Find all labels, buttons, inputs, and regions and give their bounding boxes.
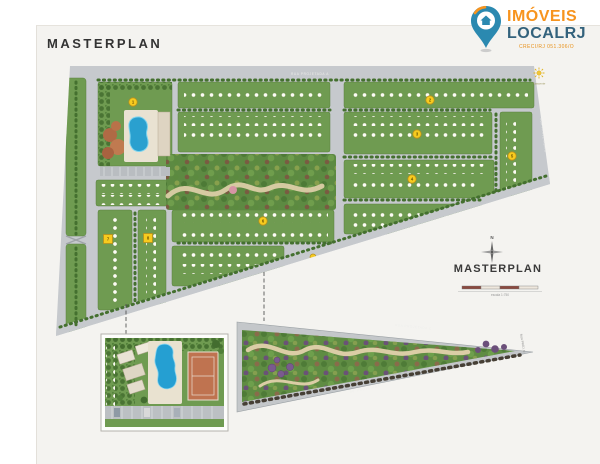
brand-localrj: LOCALRJ (507, 25, 586, 42)
brand-imoveis: IMÓVEIS (507, 8, 586, 25)
clubhouse-inset (101, 334, 228, 431)
sun-label: Nascente (533, 82, 546, 86)
club-building (158, 112, 170, 156)
creci-number: CRECI/RJ 051.306/O (507, 44, 586, 50)
marker-3: 3 (413, 130, 421, 138)
marker-4: 4 (408, 175, 416, 183)
inset-parking (105, 406, 224, 419)
scale-bar: escala 1:750 (458, 286, 542, 297)
marker-8: 8 (144, 234, 153, 243)
compass-n-label: N (490, 235, 493, 240)
marker-6: 6 (259, 217, 267, 225)
linear-park (166, 154, 336, 210)
scale-caption: escala 1:750 (491, 293, 509, 297)
parking-strip (100, 167, 170, 176)
marker-5: 5 (508, 152, 516, 160)
park-inset: RUA PROJETADA C AV. PROJETADA RUA PROJ. … (237, 322, 533, 412)
inset-pool (155, 344, 177, 389)
masterplan-page: RUA PROJETADA A RUA PROJETADA B Nas área… (0, 0, 600, 464)
marker-7: 7 (104, 235, 113, 244)
compass-rose: N (481, 235, 503, 263)
street-label-top: RUA PROJETADA A (291, 72, 329, 76)
pool (129, 117, 148, 152)
brand-logo: IMÓVEIS LOCALRJ CRECI/RJ 051.306/O (468, 4, 586, 54)
plan-label: MASTERPLAN (440, 263, 556, 275)
location-pin-icon (468, 4, 504, 54)
page-title: MASTERPLAN (47, 36, 162, 51)
park-street-top: RUA PROJETADA C (395, 323, 432, 331)
marker-1: 1 (129, 98, 137, 106)
marker-2: 2 (426, 96, 434, 104)
inset-court (188, 352, 218, 400)
masterplan-drawing: RUA PROJETADA A RUA PROJETADA B Nas área… (0, 0, 600, 464)
main-plan-map: RUA PROJETADA A RUA PROJETADA B Nas área… (50, 60, 560, 350)
